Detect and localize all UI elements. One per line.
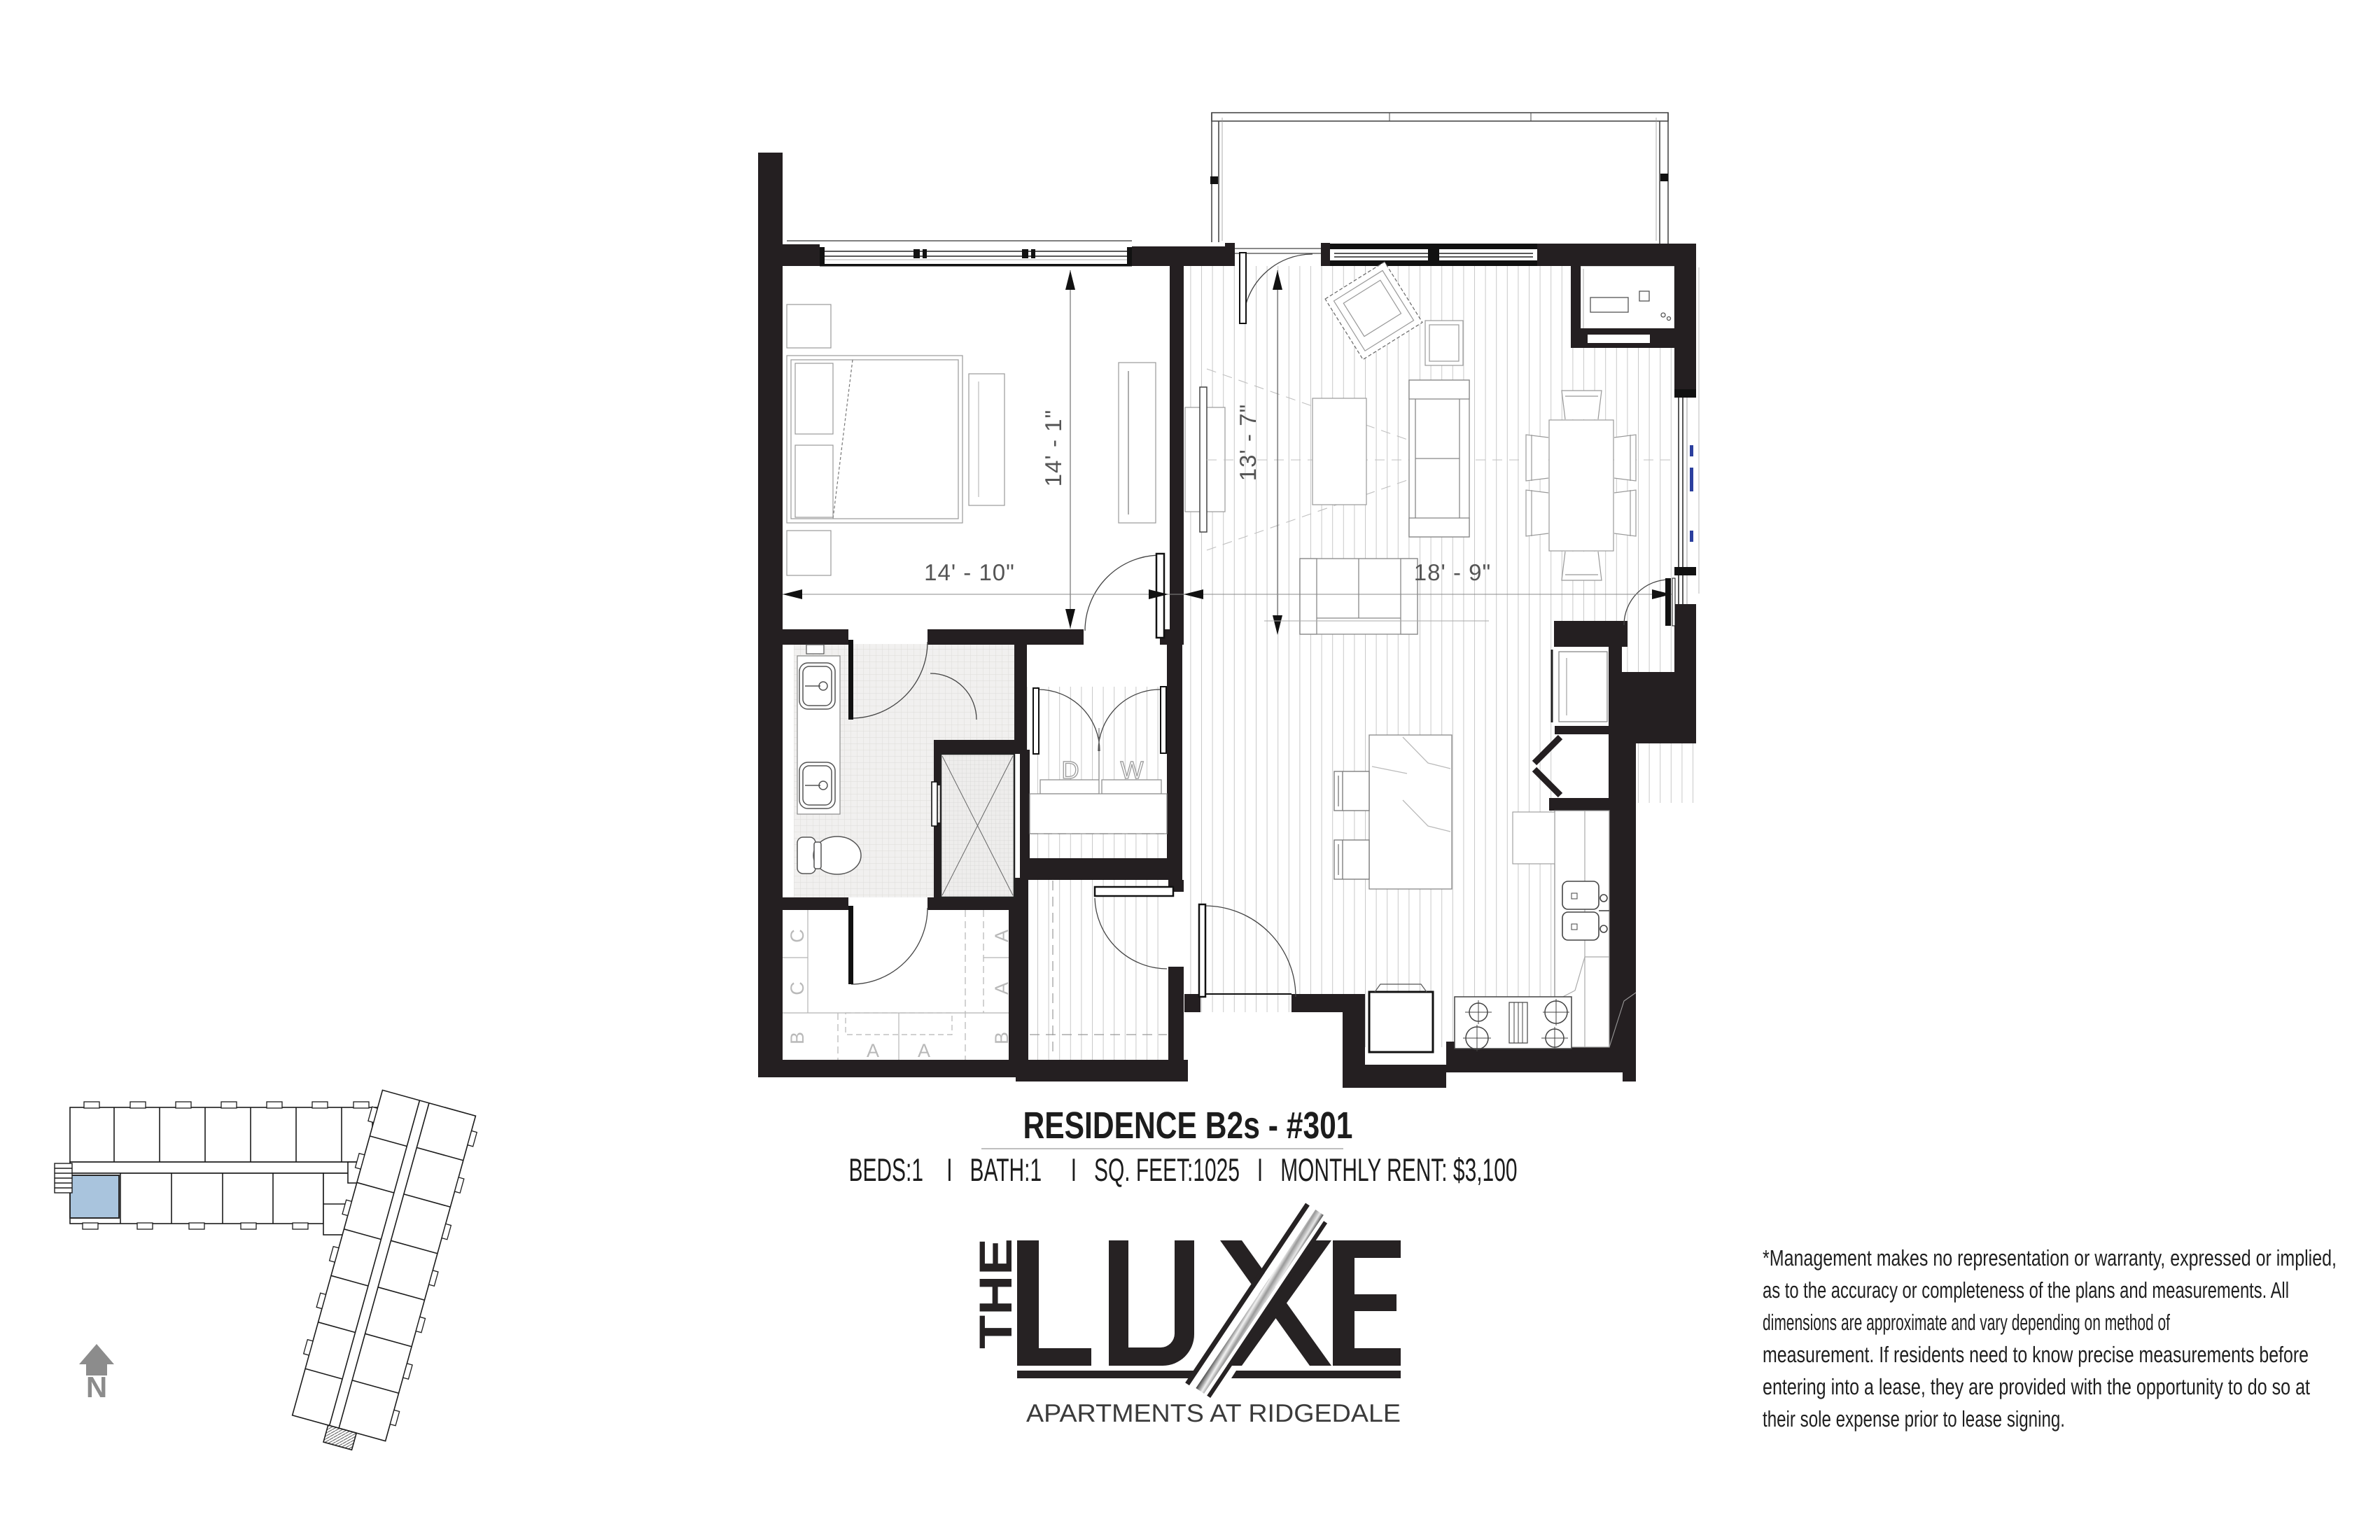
- svg-text:A: A: [991, 930, 1012, 942]
- svg-text:THE: THE: [969, 1238, 1021, 1349]
- svg-text:dimensions are approximate and: dimensions are approximate and vary depe…: [1763, 1310, 2170, 1335]
- svg-text:B: B: [787, 1032, 808, 1044]
- svg-text:*Management makes no represent: *Management makes no representation or w…: [1763, 1245, 2337, 1270]
- svg-text:18' - 9": 18' - 9": [1414, 559, 1491, 585]
- svg-text:A: A: [867, 1040, 879, 1061]
- svg-text:BEDS:1 I BATH:1 I S: BEDS:1 I BATH:1 I SQ. FEET:1025 I MONTHL…: [849, 1151, 1518, 1188]
- svg-text:14' - 1": 14' - 1": [1040, 409, 1066, 486]
- svg-text:A: A: [991, 982, 1012, 995]
- svg-text:RESIDENCE B2s - #301: RESIDENCE B2s - #301: [1023, 1105, 1353, 1147]
- svg-text:14' - 10": 14' - 10": [924, 559, 1015, 585]
- svg-text:their sole expense prior to le: their sole expense prior to lease signin…: [1763, 1406, 2065, 1431]
- svg-text:D: D: [1061, 757, 1079, 784]
- svg-text:W: W: [1120, 757, 1143, 784]
- svg-text:C: C: [787, 929, 808, 943]
- svg-text:13' - 7": 13' - 7": [1235, 404, 1261, 481]
- svg-text:as to the accuracy or complete: as to the accuracy or completeness of th…: [1763, 1277, 2289, 1303]
- svg-text:measurement. If residents need: measurement. If residents need to know p…: [1763, 1342, 2309, 1367]
- svg-text:entering into a lease, they ar: entering into a lease, they are provided…: [1763, 1374, 2310, 1399]
- svg-text:C: C: [787, 981, 808, 995]
- svg-text:A: A: [918, 1040, 930, 1061]
- svg-text:B: B: [991, 1032, 1012, 1044]
- svg-text:APARTMENTS AT RIDGEDALE: APARTMENTS AT RIDGEDALE: [1026, 1399, 1401, 1427]
- svg-text:N: N: [86, 1371, 107, 1403]
